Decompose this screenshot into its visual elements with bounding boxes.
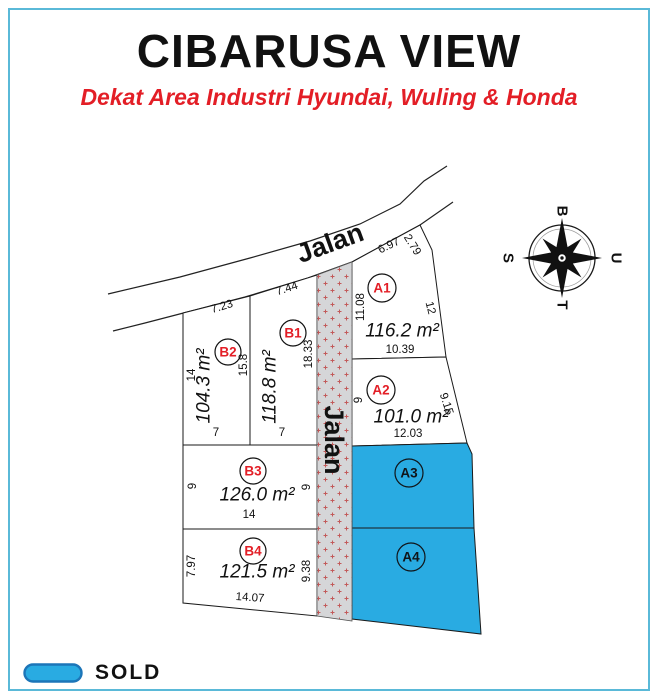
dim-B4-bottom: 14.07 bbox=[235, 591, 265, 605]
dim-B2-right: 15.8 bbox=[238, 354, 250, 376]
dim-B2-left: 14 bbox=[186, 368, 198, 381]
plot-id-A4: A4 bbox=[402, 550, 420, 565]
legend-sold-swatch bbox=[23, 663, 83, 683]
plot-id-B2: B2 bbox=[219, 345, 236, 360]
dim-A2-left: 9 bbox=[353, 397, 365, 403]
plot-id-B4: B4 bbox=[244, 544, 262, 559]
legend-sold-label: SOLD bbox=[95, 661, 161, 685]
site-plan-map: Jalan Jalan A1 116.2 m² 6.97 2.79 11.08 … bbox=[0, 0, 658, 700]
compass-letter-west: B bbox=[554, 206, 571, 217]
dim-A1-bottom: 10.39 bbox=[386, 344, 415, 356]
plot-A3-sold bbox=[352, 443, 474, 528]
dim-B3-bottom: 14 bbox=[243, 509, 256, 521]
plot-id-A2: A2 bbox=[372, 383, 389, 398]
plot-area-B3: 126.0 m² bbox=[220, 485, 296, 506]
dim-B3-right: 9 bbox=[301, 484, 313, 490]
plot-area-A2: 101.0 m² bbox=[374, 407, 450, 428]
plot-id-B3: B3 bbox=[244, 464, 262, 479]
plot-id-A3: A3 bbox=[400, 466, 418, 481]
plot-area-B4: 121.5 m² bbox=[220, 562, 296, 583]
vertical-road-label: Jalan bbox=[319, 405, 349, 474]
compass-letter-north: U bbox=[608, 253, 625, 264]
compass-letter-south: S bbox=[500, 253, 517, 263]
dim-B4-left: 7.97 bbox=[186, 555, 198, 577]
plot-id-B1: B1 bbox=[284, 326, 302, 341]
plot-area-B1: 118.8 m² bbox=[260, 350, 281, 424]
compass-hub-dot bbox=[560, 256, 563, 259]
flyer-page: CIBARUSA VIEW Dekat Area Industri Hyunda… bbox=[0, 0, 658, 700]
dim-B2-bottom: 7 bbox=[213, 427, 219, 439]
compass-letter-east: T bbox=[554, 300, 571, 309]
legend: SOLD bbox=[23, 661, 161, 685]
compass-rose: B U T S bbox=[500, 206, 625, 310]
dim-B4-right: 9.38 bbox=[301, 560, 313, 582]
dim-A1-left: 11.08 bbox=[355, 293, 367, 321]
plot-id-A1: A1 bbox=[373, 281, 391, 296]
dim-B1-bottom: 7 bbox=[279, 427, 285, 439]
plot-area-A1: 116.2 m² bbox=[365, 321, 439, 342]
dim-B1-right: 18.33 bbox=[303, 340, 315, 369]
dim-A2-bottom: 12.03 bbox=[394, 428, 423, 440]
dim-B3-left: 9 bbox=[187, 483, 199, 489]
plot-area-B2: 104.3 m² bbox=[194, 348, 215, 424]
